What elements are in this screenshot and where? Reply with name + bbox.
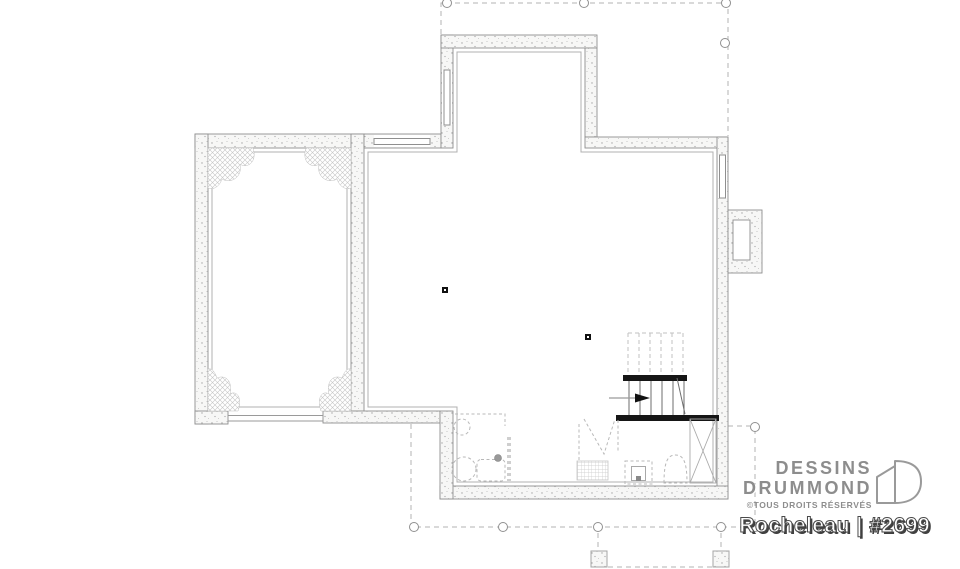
window: [374, 135, 430, 147]
window: [718, 155, 727, 198]
chimney-cavity: [733, 220, 750, 260]
deck-stairs-lines: [598, 533, 721, 567]
staircase: [609, 333, 719, 421]
wall-segment: [585, 48, 597, 137]
deck-post: [751, 423, 760, 432]
deck-post: [594, 523, 603, 532]
stairs-above-dashed: [628, 333, 683, 375]
brand-block: DESSINS DRUMMOND ©TOUS DROITS RÉSERVÉS: [743, 459, 872, 510]
deck-post: [717, 523, 726, 532]
water-heater: [664, 455, 687, 483]
stair-footing: [591, 551, 607, 567]
sink-roughin: [454, 419, 470, 435]
garage-corner-hatch: [305, 148, 351, 189]
wall-segment: [440, 411, 453, 499]
sump-pump: [636, 476, 641, 481]
wall-segment: [351, 134, 364, 411]
steel-post-center: [444, 289, 446, 291]
garage-inner-line: [212, 152, 347, 407]
x-brace-chase: [690, 419, 716, 483]
bathroom-partition: [455, 414, 505, 426]
garage-door-opening: [228, 416, 323, 422]
garage: [208, 148, 351, 421]
deck-post: [721, 39, 730, 48]
drummond-d-icon: [872, 456, 926, 508]
wall-segment: [440, 486, 728, 499]
floor-grate: [577, 461, 608, 480]
exterior-walls: [195, 35, 728, 499]
window: [442, 70, 452, 125]
mechanical: [577, 419, 716, 484]
garage-corner-hatch: [208, 369, 240, 411]
wall-segment: [323, 411, 440, 423]
steel-post-center: [587, 336, 589, 338]
deck-post: [580, 0, 589, 8]
structural-posts: [442, 287, 591, 340]
wall-segment: [585, 137, 728, 148]
plan-title: Rocheleau | #2699: [739, 514, 930, 538]
bathroom-roughin: [452, 414, 509, 481]
toilet-roughin: [452, 457, 476, 481]
stair-footing: [713, 551, 729, 567]
deck-post: [410, 523, 419, 532]
deck-post: [722, 0, 731, 8]
brand-name-line2: DRUMMOND: [743, 479, 872, 497]
stair-base-bar: [616, 415, 719, 421]
deck-post: [499, 523, 508, 532]
copyright-text: ©TOUS DROITS RÉSERVÉS: [743, 501, 872, 510]
deck-top-outline: [441, 3, 728, 136]
garage-corner-hatch: [319, 369, 351, 411]
shower-roughin: [477, 460, 505, 482]
floor-plan-canvas: DESSINS DRUMMOND ©TOUS DROITS RÉSERVÉS R…: [0, 0, 960, 569]
deck-post: [443, 0, 452, 8]
garage-corner-hatch: [208, 148, 254, 189]
wall-segment: [195, 134, 365, 148]
wall-segment: [195, 411, 228, 424]
brand-name-line1: DESSINS: [743, 459, 872, 477]
wall-segment: [195, 134, 208, 424]
wall-segment: [441, 35, 597, 48]
chimney-bumpout: [728, 210, 762, 273]
floor-drain: [495, 455, 502, 462]
